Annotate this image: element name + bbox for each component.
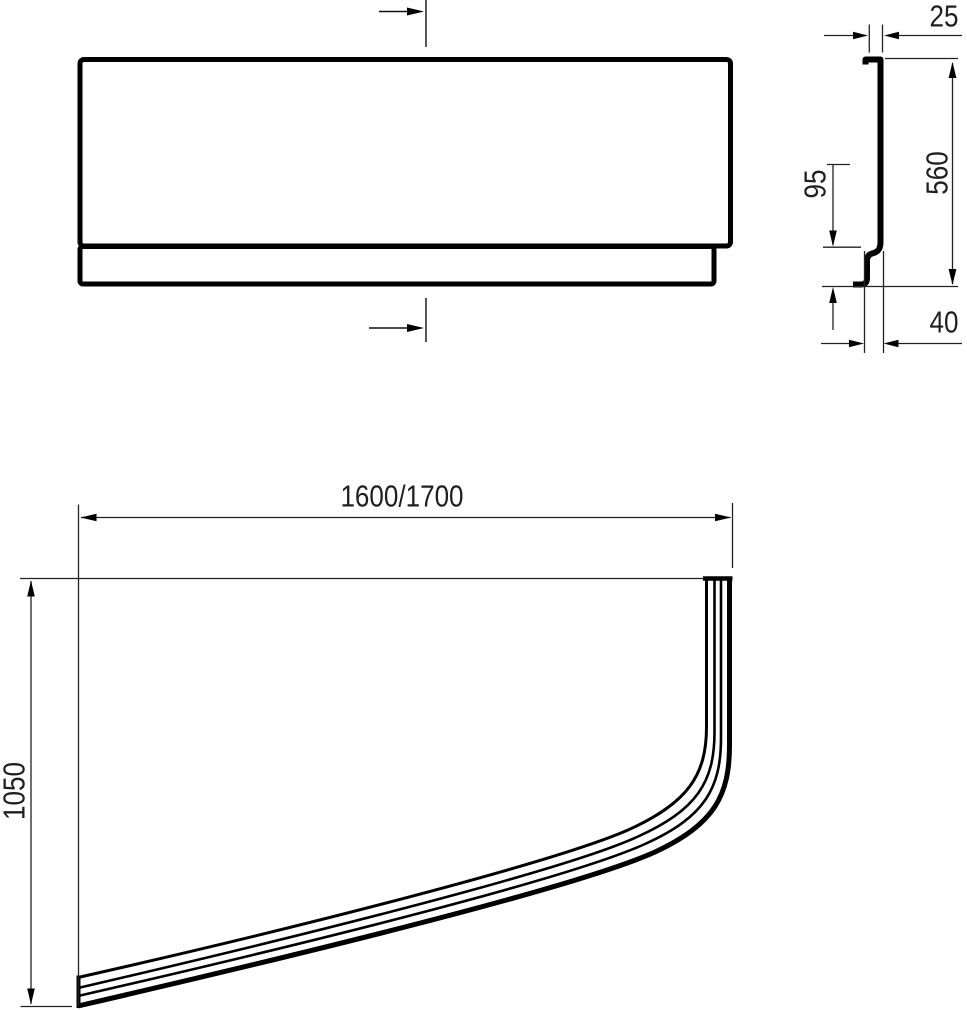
dim-560-arrow-down bbox=[949, 269, 957, 285]
dim-560-arrow-up bbox=[949, 62, 957, 78]
section-marker-top bbox=[379, 0, 426, 47]
section-marker-bottom bbox=[369, 298, 426, 342]
dim-label-profile-step-height: 95 bbox=[800, 170, 831, 199]
dim-label-profile-bottom-depth: 40 bbox=[930, 307, 959, 338]
plan-panel-line-3 bbox=[78, 580, 721, 996]
plan-panel-outer-edge bbox=[78, 580, 730, 1006]
dim-length-arrow-right bbox=[715, 514, 731, 522]
dim-label-profile-height: 560 bbox=[922, 151, 953, 194]
dim-width-arrow-down bbox=[27, 989, 35, 1005]
side-profile-view bbox=[853, 60, 881, 285]
dim-95-arrow-up bbox=[829, 287, 837, 303]
dim-95-arrow-down bbox=[829, 231, 837, 247]
dim-label-plan-width: 1050 bbox=[0, 762, 30, 820]
side-profile-outline bbox=[853, 60, 881, 285]
drawing-linework bbox=[0, 0, 967, 1010]
dim-width-graphics bbox=[20, 579, 703, 1007]
plan-panel-inner-edge bbox=[78, 580, 707, 978]
section-arrow-top bbox=[407, 8, 424, 16]
front-panel-face bbox=[80, 60, 731, 247]
front-panel-bottom-strip bbox=[80, 247, 714, 285]
technical-drawing-canvas: 25 560 95 40 1600/1700 1050 bbox=[0, 0, 967, 1010]
dim-length-arrow-left bbox=[81, 514, 97, 522]
dim-40-arrow-right bbox=[884, 340, 899, 348]
dim-25-arrow-right bbox=[884, 32, 899, 39]
dim-label-profile-top-depth: 25 bbox=[930, 1, 959, 32]
plan-view bbox=[78, 579, 733, 1009]
dim-25-arrow-left bbox=[853, 32, 868, 39]
front-elevation-view bbox=[80, 60, 731, 285]
dim-40-arrow-left bbox=[849, 340, 864, 348]
dim-label-plan-length: 1600/1700 bbox=[340, 481, 463, 512]
dim-width-arrow-up bbox=[27, 581, 35, 597]
section-arrow-bottom bbox=[407, 324, 424, 332]
